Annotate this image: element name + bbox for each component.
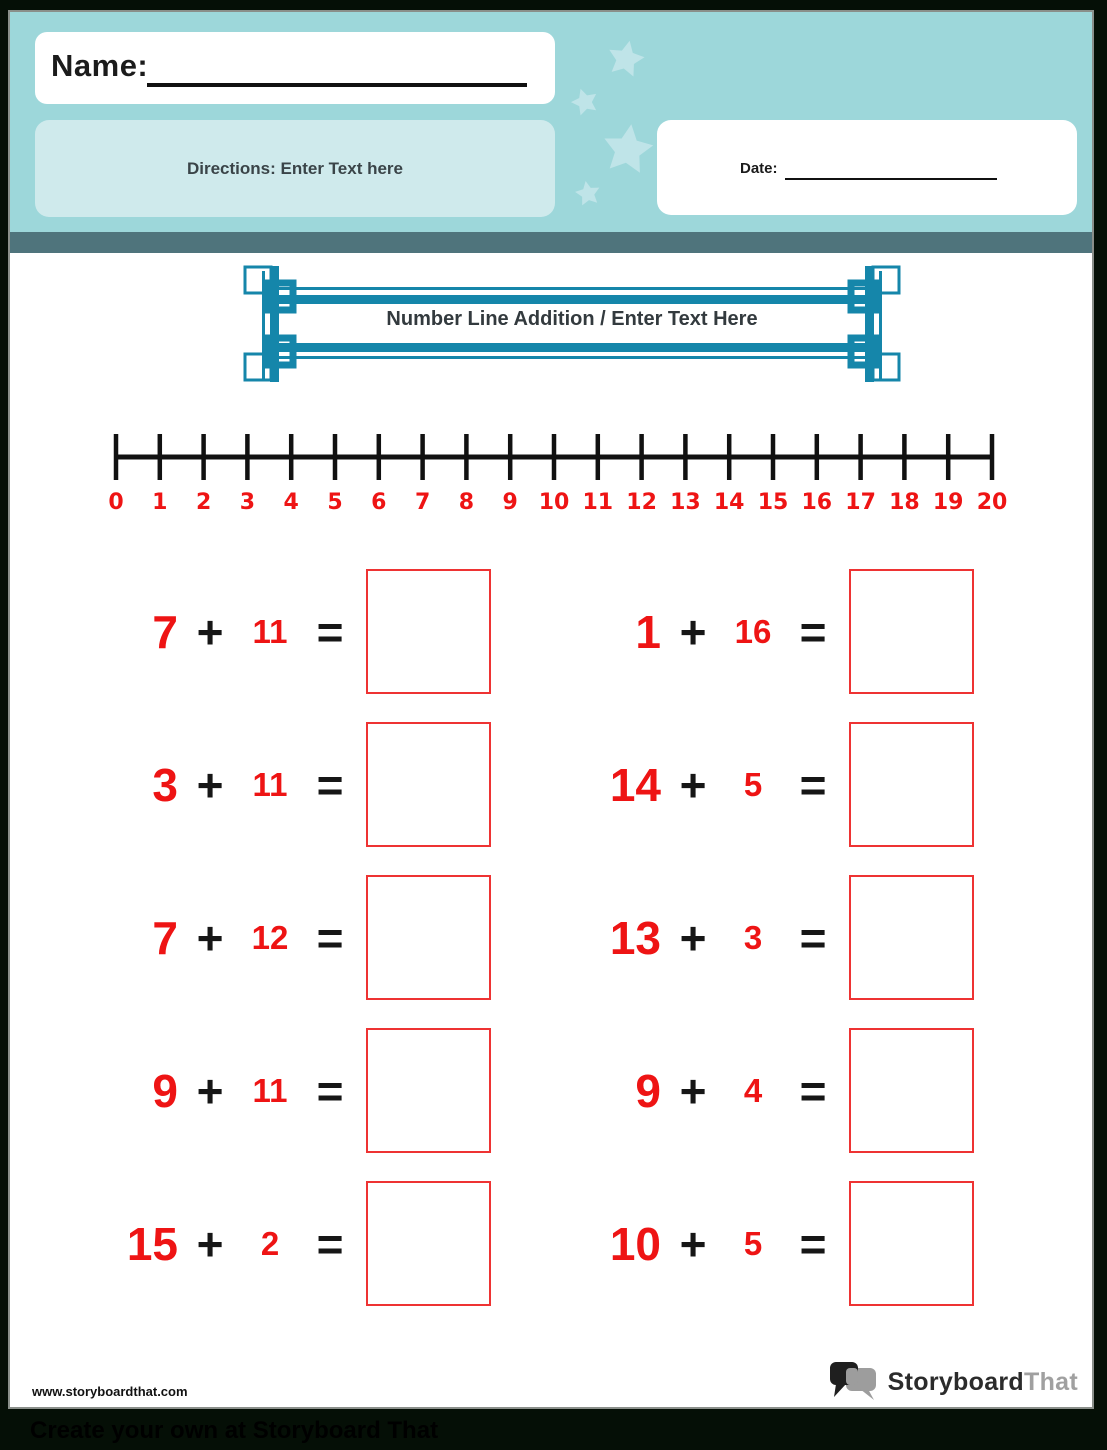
tick-label: 4 [284, 490, 299, 515]
plus-sign: + [188, 762, 232, 808]
plus-sign: + [671, 762, 715, 808]
first-addend: 13 [597, 915, 661, 961]
second-addend: 12 [242, 921, 298, 954]
second-addend: 11 [242, 1074, 298, 1107]
tick-label: 20 [977, 490, 1008, 515]
number-line: 01234567891011121314151617181920 [10, 424, 1096, 524]
answer-box[interactable] [849, 1181, 974, 1306]
first-addend: 9 [114, 1068, 178, 1114]
date-input-line[interactable] [785, 178, 997, 180]
tick-label: 5 [327, 490, 342, 515]
star-icon [600, 121, 655, 174]
date-field: Date: [657, 120, 1077, 215]
answer-box[interactable] [366, 722, 491, 847]
tick-label: 2 [196, 490, 211, 515]
logo-text-primary: Storyboard [888, 1368, 1024, 1396]
divider-bar [10, 232, 1092, 253]
plus-sign: + [671, 609, 715, 655]
problem-row: 9 + 11 = [10, 1014, 491, 1167]
answer-box[interactable] [366, 875, 491, 1000]
tick-label: 6 [371, 490, 386, 515]
equals-sign: = [308, 1221, 352, 1267]
tick-label: 19 [933, 490, 964, 515]
equals-sign: = [791, 1221, 835, 1267]
problem-row: 1 + 16 = [551, 555, 974, 708]
tick-label: 15 [758, 490, 789, 515]
tick-label: 13 [670, 490, 701, 515]
tick-label: 14 [714, 490, 745, 515]
plus-sign: + [188, 915, 232, 961]
answer-box[interactable] [849, 722, 974, 847]
first-addend: 10 [597, 1221, 661, 1267]
date-label: Date: [740, 160, 778, 177]
equals-sign: = [791, 915, 835, 961]
name-label: Name: [51, 48, 148, 84]
bottom-banner-text: Create your own at Storyboard That [30, 1417, 438, 1445]
plus-sign: + [671, 915, 715, 961]
tick-label: 10 [539, 490, 570, 515]
problem-row: 14 + 5 = [551, 708, 974, 861]
directions-box[interactable]: Directions: Enter Text here [35, 120, 555, 217]
plus-sign: + [188, 1221, 232, 1267]
speech-bubbles-icon [828, 1360, 880, 1404]
equals-sign: = [308, 609, 352, 655]
star-icon [573, 179, 601, 206]
equals-sign: = [308, 1068, 352, 1114]
title-banner: Number Line Addition / Enter Text Here [242, 264, 902, 386]
directions-text: Directions: Enter Text here [187, 159, 403, 179]
equals-sign: = [791, 609, 835, 655]
name-input-line[interactable] [147, 83, 527, 87]
problem-row: 3 + 11 = [10, 708, 491, 861]
second-addend: 11 [242, 768, 298, 801]
answer-box[interactable] [849, 1028, 974, 1153]
answer-box[interactable] [849, 569, 974, 694]
equals-sign: = [308, 762, 352, 808]
tick-label: 11 [582, 490, 613, 515]
equals-sign: = [791, 1068, 835, 1114]
problem-row: 7 + 11 = [10, 555, 491, 708]
first-addend: 7 [114, 609, 178, 655]
answer-box[interactable] [366, 1181, 491, 1306]
tick-label: 8 [459, 490, 474, 515]
problem-row: 9 + 4 = [551, 1014, 974, 1167]
tick-label: 18 [889, 490, 920, 515]
tick-label: 9 [503, 490, 518, 515]
first-addend: 9 [597, 1068, 661, 1114]
first-addend: 14 [597, 762, 661, 808]
first-addend: 15 [114, 1221, 178, 1267]
second-addend: 2 [242, 1227, 298, 1260]
second-addend: 16 [725, 615, 781, 648]
equals-sign: = [308, 915, 352, 961]
tick-label: 12 [626, 490, 657, 515]
website-url: www.storyboardthat.com [32, 1384, 188, 1399]
first-addend: 3 [114, 762, 178, 808]
answer-box[interactable] [366, 569, 491, 694]
problem-row: 13 + 3 = [551, 861, 974, 1014]
first-addend: 7 [114, 915, 178, 961]
star-icon [568, 85, 601, 117]
storyboardthat-logo: StoryboardThat [828, 1360, 1078, 1404]
problem-row: 15 + 2 = [10, 1167, 491, 1320]
tick-label: 17 [845, 490, 876, 515]
second-addend: 5 [725, 1227, 781, 1260]
header: Name: Directions: Enter Text here Date: [10, 12, 1092, 232]
plus-sign: + [188, 609, 232, 655]
answer-box[interactable] [849, 875, 974, 1000]
tick-label: 0 [108, 490, 123, 515]
worksheet-title[interactable]: Number Line Addition / Enter Text Here [282, 308, 862, 331]
logo-text: StoryboardThat [888, 1368, 1078, 1397]
second-addend: 11 [242, 615, 298, 648]
star-icon [605, 37, 647, 78]
problem-row: 7 + 12 = [10, 861, 491, 1014]
logo-text-secondary: That [1024, 1368, 1078, 1396]
plus-sign: + [188, 1068, 232, 1114]
answer-box[interactable] [366, 1028, 491, 1153]
problem-row: 10 + 5 = [551, 1167, 974, 1320]
plus-sign: + [671, 1221, 715, 1267]
tick-label: 3 [240, 490, 255, 515]
problems-grid: 7 + 11 = 3 + 11 = 7 + 12 = 9 + 11 = 15 +… [10, 555, 1092, 1320]
worksheet-page: Name: Directions: Enter Text here Date: [8, 10, 1094, 1409]
second-addend: 4 [725, 1074, 781, 1107]
problems-column-2: 1 + 16 = 14 + 5 = 13 + 3 = 9 + 4 = 10 + … [551, 555, 1092, 1320]
tick-label: 1 [152, 490, 167, 515]
equals-sign: = [791, 762, 835, 808]
tick-label: 7 [415, 490, 430, 515]
plus-sign: + [671, 1068, 715, 1114]
tick-label: 16 [801, 490, 832, 515]
problems-column-1: 7 + 11 = 3 + 11 = 7 + 12 = 9 + 11 = 15 +… [10, 555, 551, 1320]
second-addend: 3 [725, 921, 781, 954]
second-addend: 5 [725, 768, 781, 801]
name-field: Name: [35, 32, 555, 104]
first-addend: 1 [597, 609, 661, 655]
